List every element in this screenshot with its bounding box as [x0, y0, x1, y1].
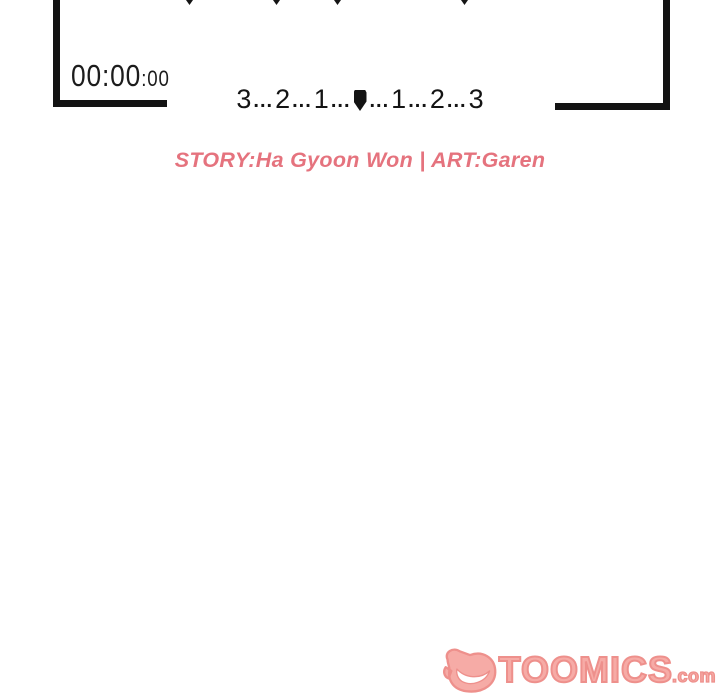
cutoff-text-remnant	[186, 0, 193, 5]
webtoon-page: 00:00:00 3...2...1......1...2...3 STORY:…	[0, 0, 720, 700]
toomics-logo-tld: .com	[672, 666, 716, 696]
countdown-dots: ...	[331, 90, 351, 113]
countdown-number: 2	[275, 84, 290, 114]
toomics-logo-text: TOOMICS	[499, 649, 673, 691]
cutoff-text-remnant	[461, 0, 468, 5]
countdown-number: 1	[391, 84, 406, 114]
countdown-dots: ...	[408, 90, 428, 113]
countdown-number: 3	[469, 84, 484, 114]
countdown-dots: ...	[253, 90, 273, 113]
countdown-number: 1	[314, 84, 329, 114]
story-art-credits: STORY:Ha Gyoon Won | ART:Garen	[0, 148, 720, 173]
toomics-watermark: TOOMICS .com	[442, 644, 716, 696]
countdown-dots: ...	[447, 90, 467, 113]
censored-block-icon	[354, 90, 367, 111]
countdown-line: 3...2...1......1...2...3	[0, 84, 720, 115]
cutoff-text-remnant	[334, 0, 341, 5]
toomics-devil-icon	[442, 644, 498, 696]
cutoff-text-remnant	[273, 0, 280, 5]
countdown-dots: ...	[292, 90, 312, 113]
countdown-dots: ...	[370, 90, 390, 113]
countdown-number: 2	[430, 84, 445, 114]
countdown-number: 3	[236, 84, 251, 114]
